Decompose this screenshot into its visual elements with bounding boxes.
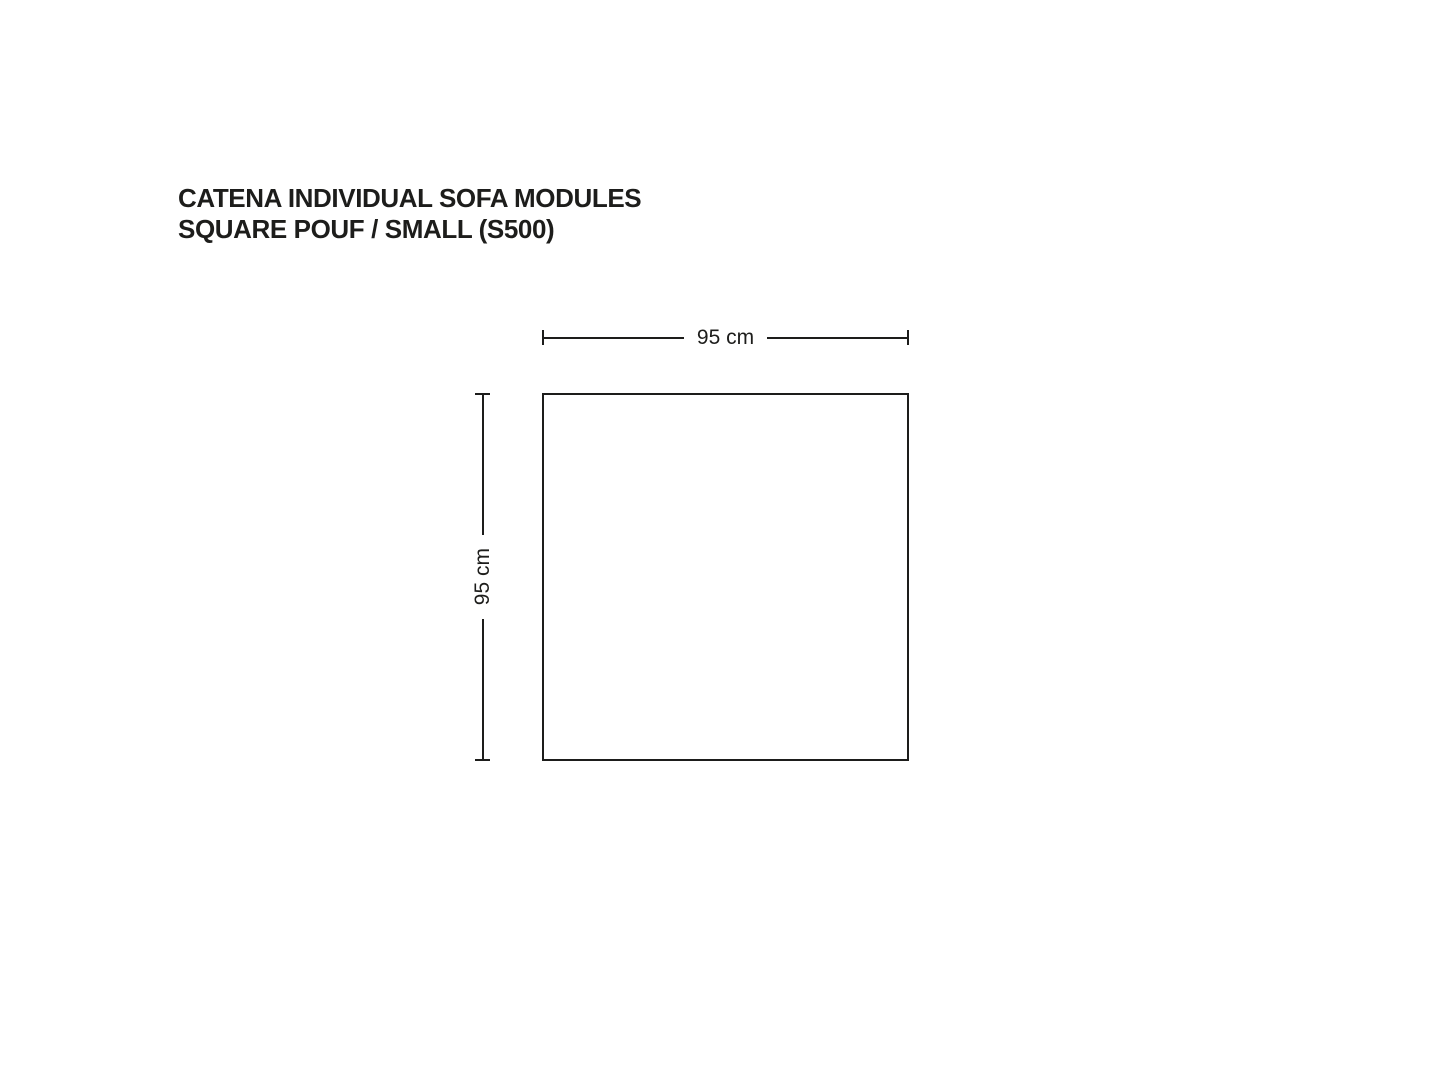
dimension-line-segment bbox=[767, 337, 907, 339]
product-title-line2: SQUARE POUF / SMALL (S500) bbox=[178, 214, 641, 245]
product-dimension-page: CATENA INDIVIDUAL SOFA MODULES SQUARE PO… bbox=[0, 0, 1445, 1087]
height-dimension: 95 cm bbox=[475, 393, 490, 761]
height-dimension-label: 95 cm bbox=[472, 535, 493, 618]
product-title-line1: CATENA INDIVIDUAL SOFA MODULES bbox=[178, 183, 641, 214]
product-title: CATENA INDIVIDUAL SOFA MODULES SQUARE PO… bbox=[178, 183, 641, 245]
dimension-line-segment bbox=[482, 619, 484, 759]
dimension-line-segment bbox=[544, 337, 684, 339]
dimension-line-segment bbox=[482, 395, 484, 535]
dimension-tick-bottom bbox=[475, 759, 490, 761]
square-pouf-outline bbox=[542, 393, 909, 761]
width-dimension-label: 95 cm bbox=[684, 327, 767, 348]
width-dimension: 95 cm bbox=[542, 330, 909, 345]
dimension-tick-right bbox=[907, 330, 909, 345]
